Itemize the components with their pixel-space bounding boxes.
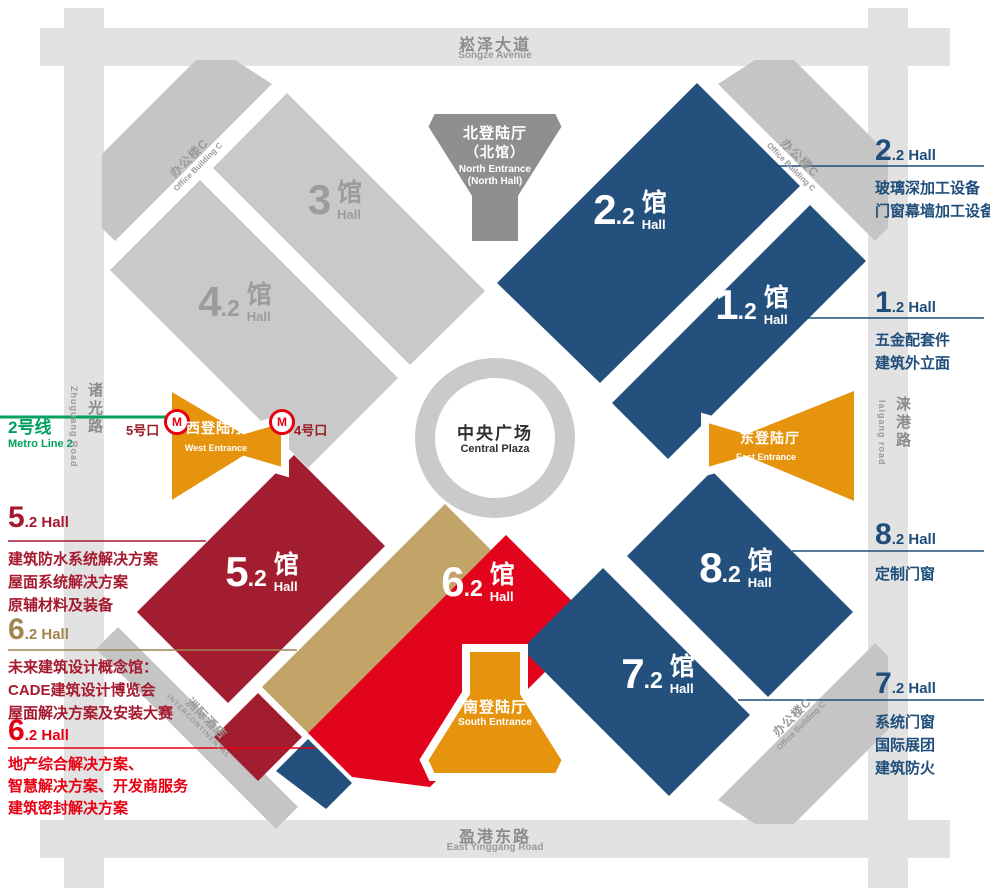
annotation-line: 建筑外立面 <box>875 352 987 375</box>
hall-guan: 馆 <box>274 553 299 578</box>
hall-guan: 馆 <box>490 563 515 588</box>
annotation-2-2-hall: 2.2 Hall 玻璃深加工设备 门窗幕墙加工设备 <box>875 136 987 223</box>
west-entrance-label-zh: 西登陆厅 <box>186 418 246 438</box>
annotation-number: 1 <box>875 286 892 319</box>
hall-word: Hall <box>764 313 789 326</box>
annotation-line: CADE建筑设计博览会 <box>8 679 238 702</box>
hall-7-2-label: 7.2 馆Hall <box>621 653 695 695</box>
annotation-line: 原辅材料及装备 <box>8 594 238 617</box>
annotation-line: 建筑密封解决方案 <box>8 798 238 820</box>
hall-guan: 馆 <box>748 549 773 574</box>
annotation-number: 6 <box>8 714 25 747</box>
annotation-7-2-hall: 7.2 Hall 系统门窗 国际展团 建筑防火 <box>875 669 987 780</box>
north-entrance-label-en1: North Entrance <box>0 164 990 175</box>
hall-guan: 馆 <box>337 181 362 206</box>
hall-3-label: 3 馆Hall <box>308 179 362 221</box>
annotation-8-2-hall: 8.2 Hall 定制门窗 <box>875 520 987 586</box>
hall-guan: 馆 <box>642 191 667 216</box>
annotation-number: 5 <box>8 501 25 534</box>
annotation-number: 7 <box>875 667 892 700</box>
annotation-6-2-hall-red: 6.2 Hall 地产综合解决方案、 智慧解决方案、开发商服务 建筑密封解决方案 <box>8 716 238 820</box>
annotation-line: 屋面系统解决方案 <box>8 571 238 594</box>
annotation-number: 8 <box>875 518 892 551</box>
annotation-line: 未来建筑设计概念馆： <box>8 656 238 679</box>
hall-word: Hall <box>642 218 667 231</box>
hall-guan: 馆 <box>764 286 789 311</box>
hall-8-2-label: 8.2 馆Hall <box>699 547 773 589</box>
north-entrance-label-en2: (North Hall) <box>0 176 990 187</box>
hall-word: Hall <box>490 590 515 603</box>
hall-4-2-label: 4.2 馆Hall <box>198 281 272 323</box>
annotation-line: 门窗幕墙加工设备 <box>875 200 987 223</box>
annotation-line: 建筑防火 <box>875 757 987 780</box>
hall-word: Hall <box>274 580 299 593</box>
hall-guan: 馆 <box>670 655 695 680</box>
hall-number: 6 <box>441 558 463 605</box>
hall-number: 7 <box>621 650 643 697</box>
annotation-line: 建筑防水系统解决方案 <box>8 548 238 571</box>
hall-1-2-label: 1.2 馆Hall <box>715 284 789 326</box>
annotation-1-2-hall: 1.2 Hall 五金配套件 建筑外立面 <box>875 288 987 375</box>
hall-word: Hall <box>748 576 773 589</box>
central-plaza-label-zh: 中央广场 <box>0 419 990 444</box>
hall-number: 1 <box>715 281 737 328</box>
annotation-line: 系统门窗 <box>875 711 987 734</box>
hall-word: Hall <box>337 208 362 221</box>
annotation-line: 地产综合解决方案、 <box>8 754 238 776</box>
annotation-line: 定制门窗 <box>875 563 987 586</box>
annotation-number: 2 <box>875 134 892 167</box>
road-bottom-label-en: East Yinggang Road <box>0 842 990 853</box>
north-entrance-label-zh2: （北馆） <box>0 142 990 162</box>
annotation-line: 玻璃深加工设备 <box>875 177 987 200</box>
hall-number: 2 <box>593 186 615 233</box>
hall-6-2-label: 6.2 馆Hall <box>441 561 515 603</box>
north-entrance-label-zh1: 北登陆厅 <box>0 122 990 143</box>
annotation-line: 国际展团 <box>875 734 987 757</box>
road-top-label-en: Songze Avenue <box>0 50 990 61</box>
east-entrance-label-zh: 东登陆厅 <box>740 428 800 448</box>
hall-2-2-label: 2.2 馆Hall <box>593 189 667 231</box>
east-entrance-label-en: East Entrance <box>736 452 796 462</box>
hall-number: 4 <box>198 278 220 325</box>
annotation-line: 五金配套件 <box>875 329 987 352</box>
annotation-number: 6 <box>8 613 25 646</box>
hall-word: Hall <box>670 682 695 695</box>
west-entrance-label-en: West Entrance <box>185 443 247 453</box>
hall-number: 3 <box>308 176 330 223</box>
hall-number: 8 <box>699 544 721 591</box>
annotation-5-2-hall: 5.2 Hall 建筑防水系统解决方案 屋面系统解决方案 原辅材料及装备 <box>8 503 238 617</box>
annotation-6-2-hall-tan: 6.2 Hall 未来建筑设计概念馆： CADE建筑设计博览会 屋面解决方案及安… <box>8 615 238 725</box>
central-plaza-label-en: Central Plaza <box>0 443 990 455</box>
hall-guan: 馆 <box>247 283 272 308</box>
hall-word: Hall <box>247 310 272 323</box>
annotation-line: 智慧解决方案、开发商服务 <box>8 776 238 798</box>
venue-map: 崧泽大道 Songze Avenue 盈港东路 East Yinggang Ro… <box>0 0 990 895</box>
